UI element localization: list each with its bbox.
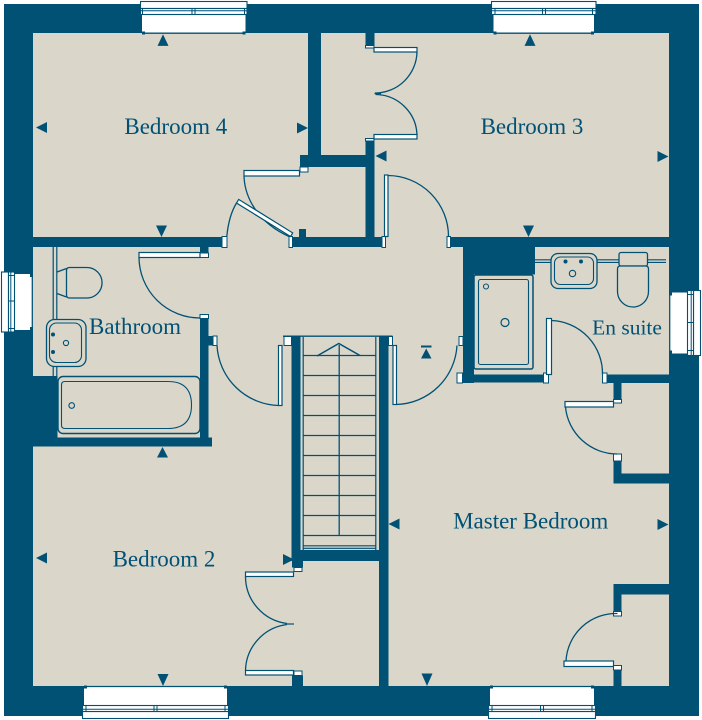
svg-text:Bedroom 4: Bedroom 4: [124, 114, 227, 139]
svg-text:Bedroom 2: Bedroom 2: [113, 547, 216, 572]
svg-text:En suite: En suite: [592, 316, 662, 340]
svg-text:Bathroom: Bathroom: [89, 314, 181, 339]
svg-text:Bedroom 3: Bedroom 3: [481, 114, 584, 139]
svg-text:Master Bedroom: Master Bedroom: [453, 509, 608, 534]
